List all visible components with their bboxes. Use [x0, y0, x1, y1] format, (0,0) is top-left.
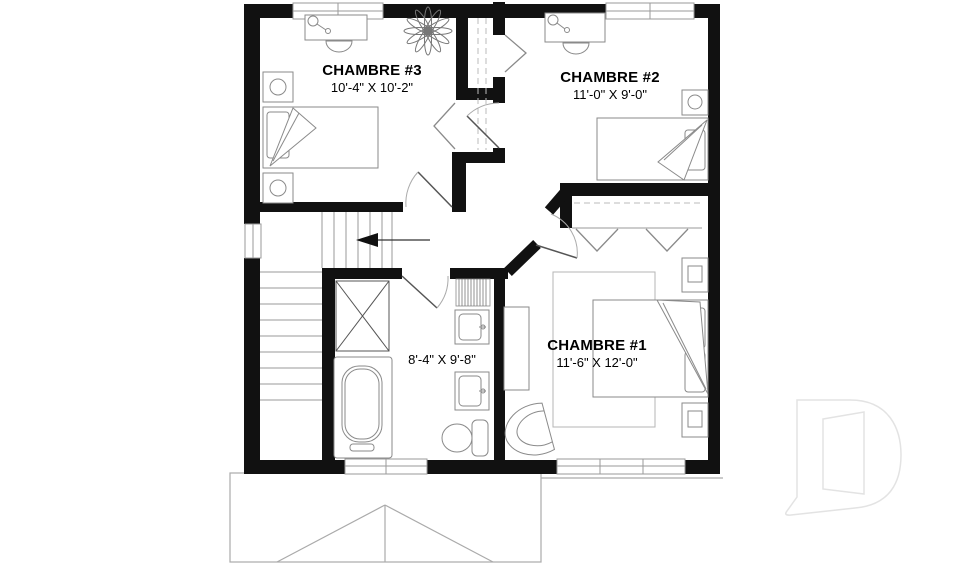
stair-direction-arrow [356, 233, 430, 247]
nightstand-with-lamp [682, 90, 708, 115]
stair-landing-window [245, 224, 261, 258]
chambre2-furniture [545, 13, 708, 180]
double-bed [593, 300, 708, 397]
fan-back-chair [499, 402, 555, 462]
desk-chair [563, 43, 589, 54]
chambre3-closet-door [434, 103, 455, 149]
nightstand-with-lamp [263, 72, 293, 102]
bifold-door-right [646, 229, 688, 251]
bathroom-window [345, 459, 427, 474]
dresser [504, 307, 529, 390]
bifold-door-left [576, 229, 618, 251]
chambre2-window [606, 3, 694, 19]
nightstand [682, 258, 708, 292]
desk-with-lamp [305, 15, 367, 52]
vanity-sink [455, 372, 489, 410]
chambre3-door [406, 172, 452, 207]
desk-with-lamp [545, 13, 605, 54]
storage-closet-x [336, 281, 389, 351]
nightstand [682, 403, 708, 437]
chambre2-door [467, 103, 499, 148]
chambre1-closet [572, 203, 702, 251]
central-closets [434, 18, 526, 150]
chambre1-furniture [499, 258, 708, 462]
lower-roof-outline [230, 473, 723, 562]
tub-faucet [350, 444, 374, 451]
chambre3-furniture [263, 7, 452, 203]
nightstand-with-lamp [263, 173, 293, 203]
bathroom-door [402, 276, 448, 308]
toilet [442, 420, 488, 456]
floor-plan: CHAMBRE #3 10'-4" X 10'-2" CHAMBRE #2 11… [0, 0, 960, 569]
desk-chair [326, 41, 352, 52]
floor-plan-drawing [0, 0, 960, 569]
drummond-d-logo-watermark [786, 400, 901, 515]
angled-hall-walls [508, 189, 568, 272]
single-bed [597, 118, 708, 180]
chambre1-window [557, 459, 685, 474]
toilet-tank [472, 420, 488, 456]
linen-closet [456, 279, 490, 306]
single-bed [263, 107, 378, 168]
lower-stair-flight [260, 272, 322, 400]
chambre2-closet-door [505, 35, 526, 72]
vanity-sink [455, 310, 489, 344]
bathtub [334, 357, 392, 458]
